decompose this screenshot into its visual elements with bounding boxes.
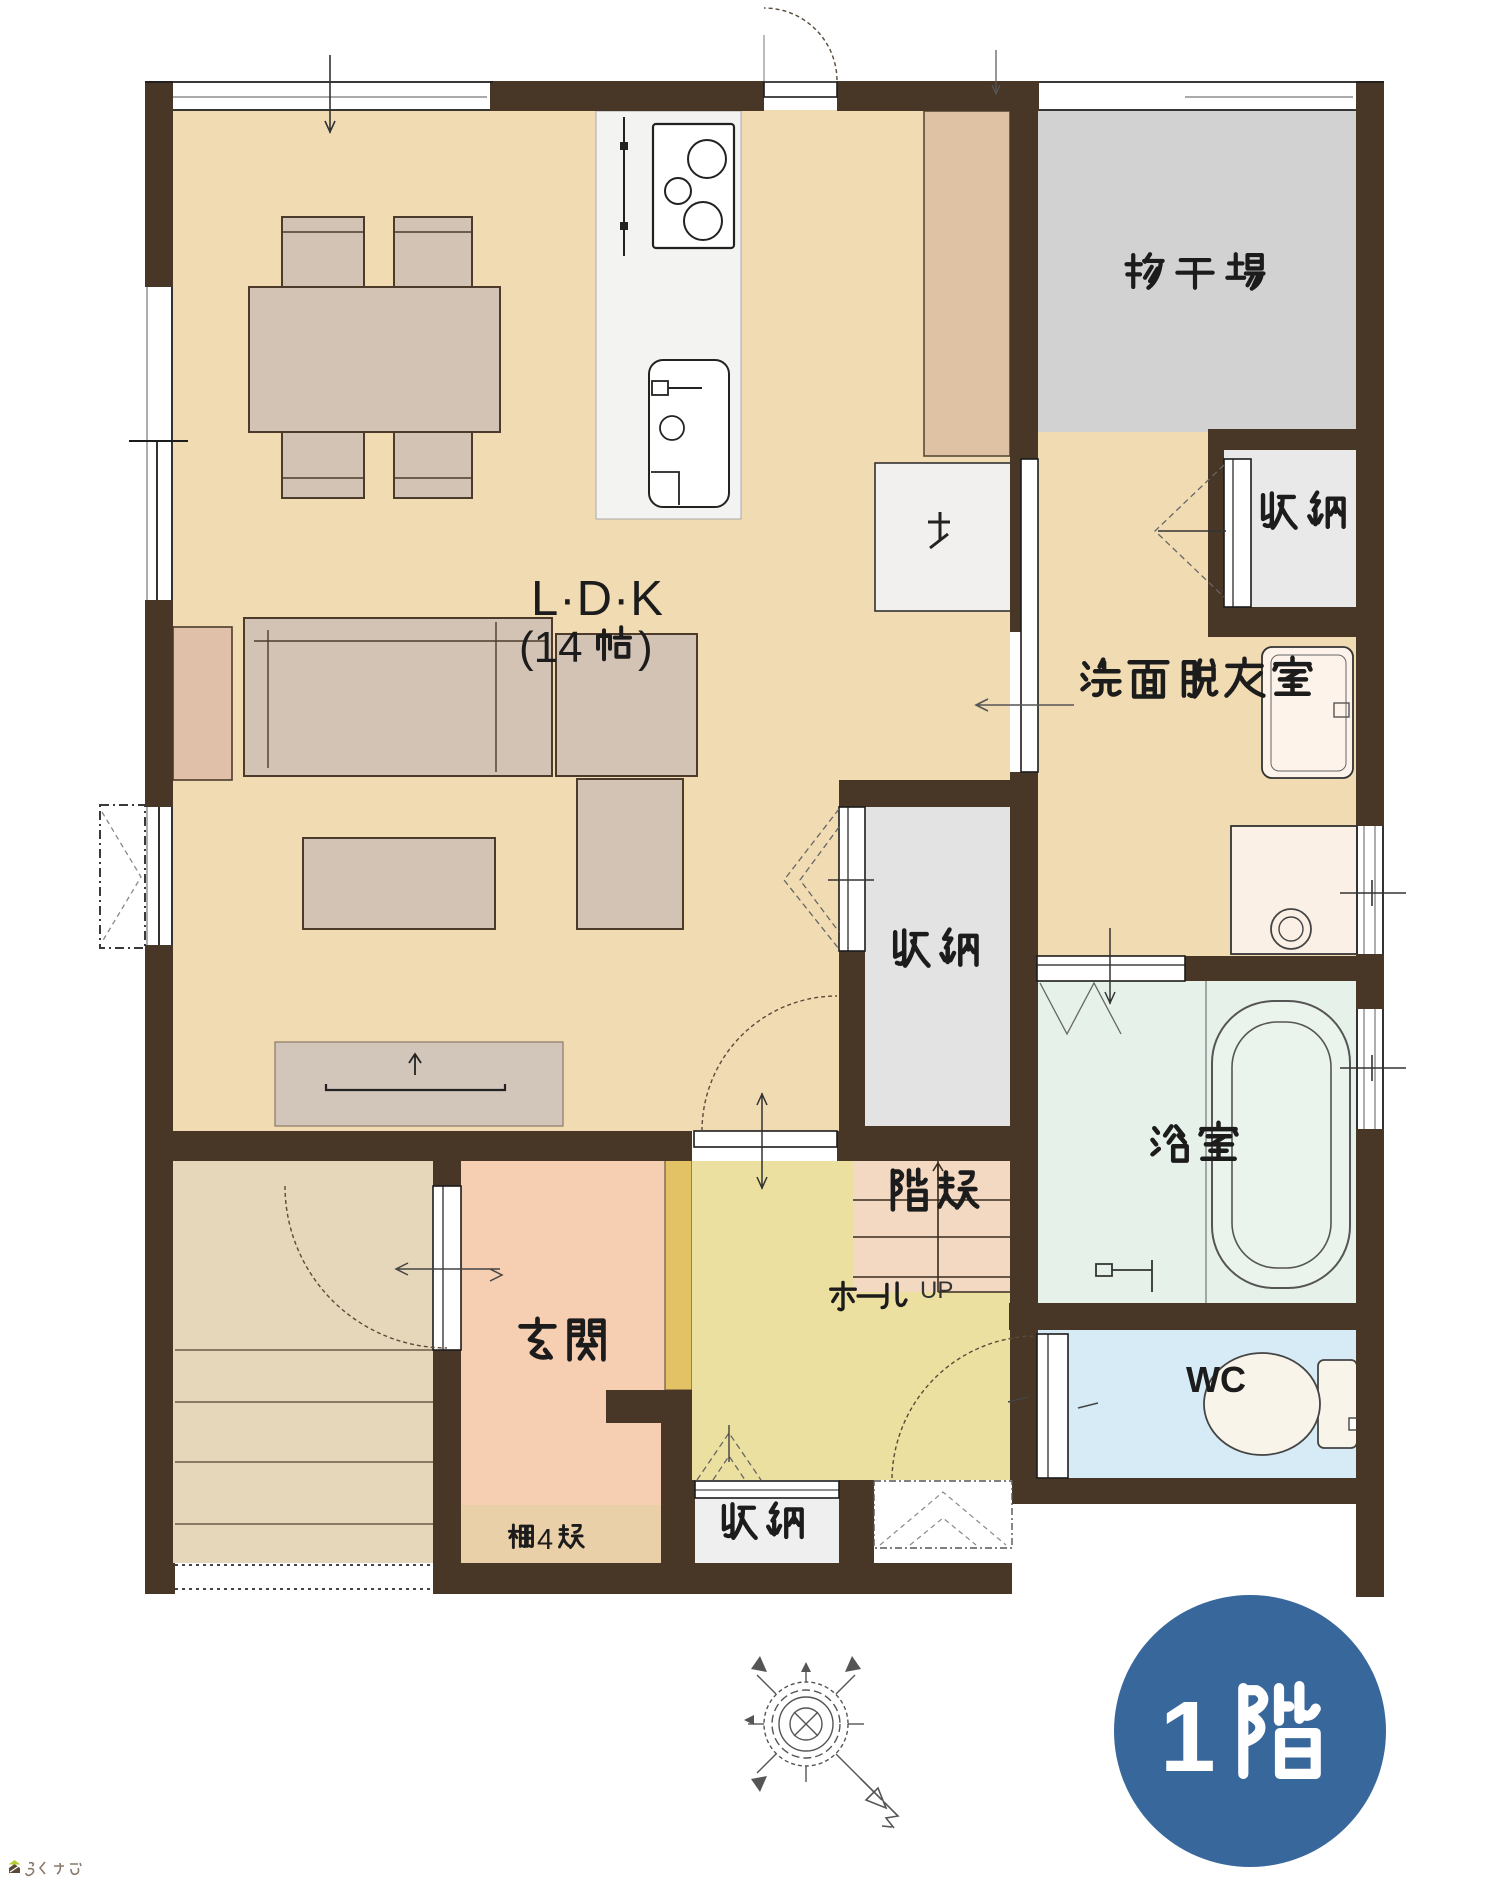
- svg-text:(14: (14: [519, 623, 583, 672]
- svg-text:UP: UP: [920, 1277, 953, 1304]
- svg-text:4: 4: [537, 1524, 553, 1556]
- svg-text:): ): [638, 623, 653, 672]
- svg-text:1: 1: [1160, 1681, 1216, 1793]
- svg-text:L·D·K: L·D·K: [531, 572, 664, 626]
- svg-text:WC: WC: [1186, 1359, 1246, 1400]
